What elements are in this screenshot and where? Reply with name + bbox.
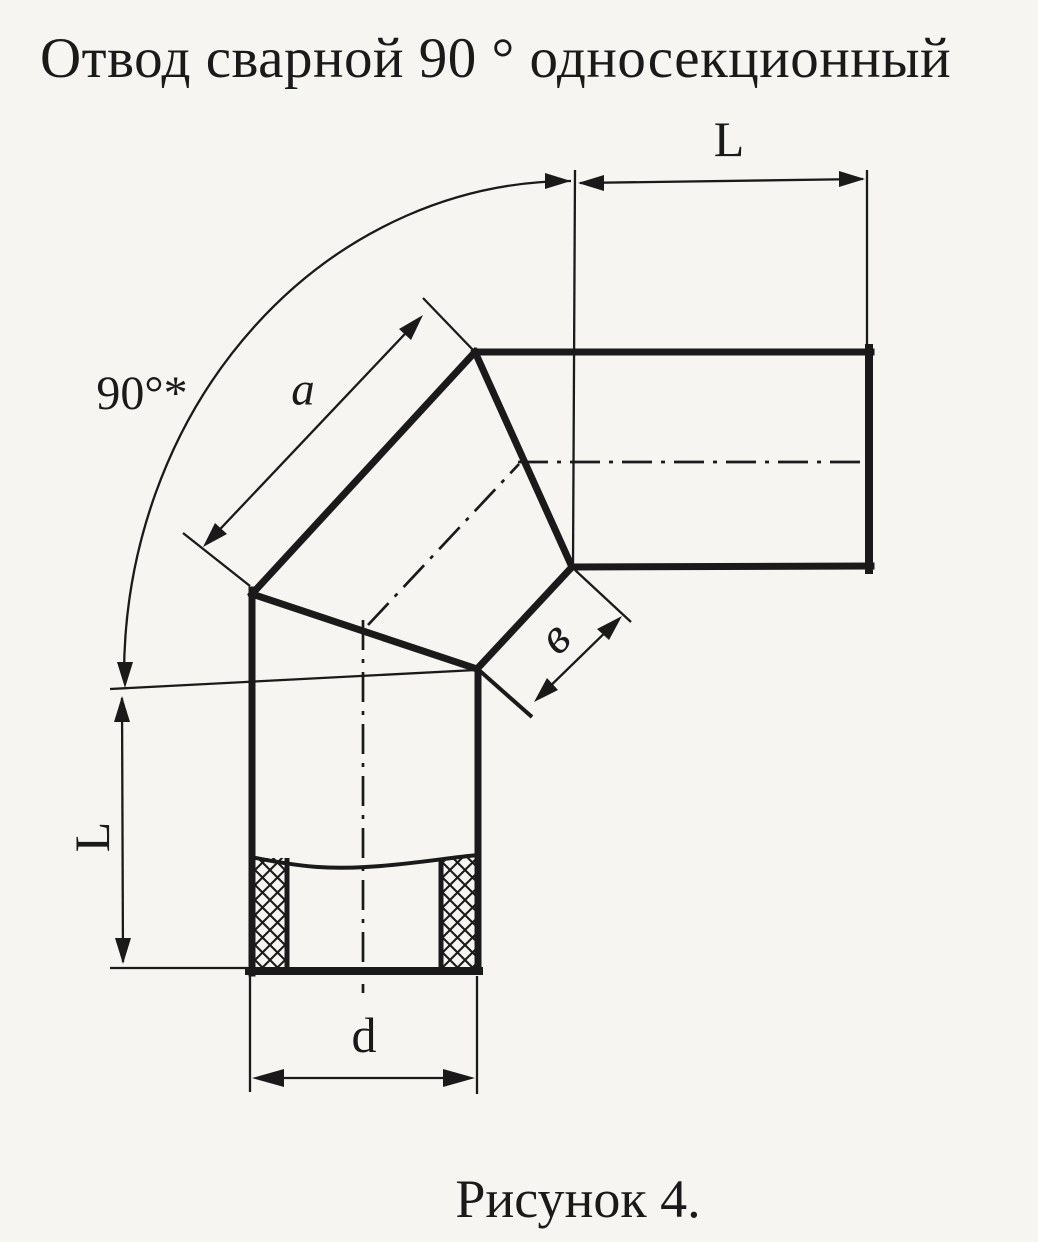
weld-miter-line-lower [252, 594, 477, 669]
dimension-a [183, 298, 474, 586]
pipe-outline [252, 352, 871, 973]
extension-line [575, 570, 631, 622]
dim-arrow-right-icon [443, 1069, 475, 1087]
dimension-line [122, 698, 123, 962]
middle-section-outer-edge [252, 352, 475, 594]
dimension-L-top [573, 170, 867, 566]
dimension-line [580, 179, 863, 183]
hatched-wall-right [442, 858, 477, 969]
hatched-wall-left [253, 858, 287, 969]
dim-arrow-right-icon [839, 171, 865, 187]
dimension-L-top-label: L [714, 114, 745, 164]
dim-arrow-down-icon [115, 938, 131, 964]
pipe-end-caps [249, 348, 869, 971]
extension-line [423, 298, 474, 351]
extension-line [573, 170, 575, 566]
extension-line [480, 671, 532, 717]
horizontal-pipe-bottom-edge [572, 566, 871, 567]
elbow-technical-drawing [0, 0, 1038, 1242]
dimension-d-label: d [352, 1010, 377, 1060]
extension-line [183, 533, 250, 586]
angle-label: 90°* [96, 370, 187, 418]
pipe-wall-section [251, 855, 478, 969]
angle-arc [124, 181, 571, 676]
dimension-L-left [110, 670, 476, 968]
figure-caption: Рисунок 4. [455, 1172, 700, 1226]
weld-miter-line-upper [475, 352, 572, 567]
dim-arrow-up-icon [114, 696, 130, 722]
page-title: Отвод сварной 90 ° односекционный [40, 26, 951, 91]
scanned-page: Отвод сварной 90 ° односекционный 90°* a… [0, 0, 1038, 1242]
arc-arrow-bottom-icon [117, 662, 133, 688]
extension-line [110, 670, 476, 689]
diagonal-axis-centerline [368, 464, 519, 625]
arc-arrow-top-icon [545, 173, 571, 189]
dimension-line [206, 318, 420, 544]
dimension-a-label: a [291, 367, 315, 414]
angle-arc-annotation [117, 173, 571, 688]
dim-arrow-left-icon [578, 175, 604, 191]
dim-arrow-left-icon [252, 1069, 284, 1087]
dimension-L-left-label: L [67, 822, 117, 853]
